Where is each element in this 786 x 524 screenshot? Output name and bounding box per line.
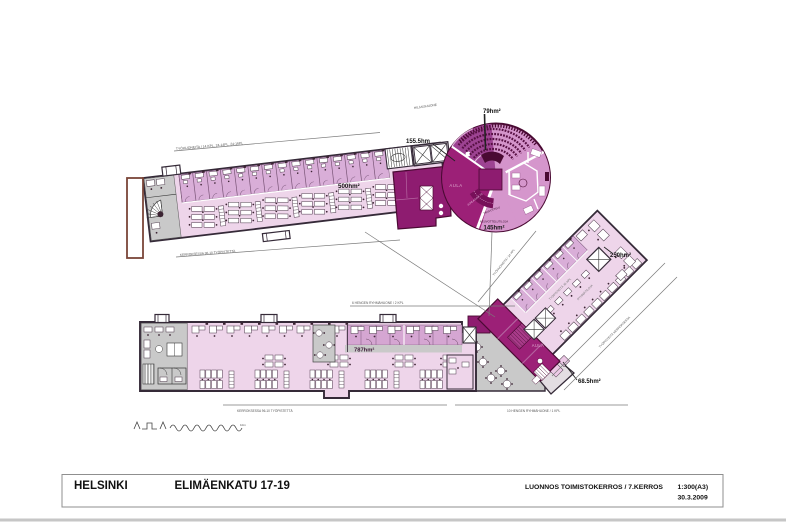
svg-text:TYÖPISTEITÄ KERROKSESSA: TYÖPISTEITÄ KERROKSESSA bbox=[598, 315, 631, 348]
svg-text:155.5hm: 155.5hm bbox=[406, 139, 430, 145]
svg-text:KERROKSESSA 96-10 TYÖPISTETTÄ: KERROKSESSA 96-10 TYÖPISTETTÄ bbox=[237, 409, 293, 413]
svg-text:79hm²: 79hm² bbox=[483, 108, 501, 115]
svg-text:10m: 10m bbox=[240, 423, 246, 427]
svg-text:68.5hm²: 68.5hm² bbox=[578, 378, 601, 385]
svg-text:TYÖHUONEITA / 14 KPL: TYÖHUONEITA / 14 KPL bbox=[492, 248, 516, 277]
svg-text:TYÖHUONEITA / 14 KPL, 24-14PL,: TYÖHUONEITA / 14 KPL, 24-14PL, 24-16PL bbox=[176, 141, 244, 151]
svg-text:6 HENGEN RYHMÄHUONE / 2 KPL: 6 HENGEN RYHMÄHUONE / 2 KPL bbox=[352, 301, 404, 305]
svg-text:145hm²: 145hm² bbox=[483, 225, 504, 232]
svg-text:787hm²: 787hm² bbox=[354, 347, 374, 354]
svg-text:1:300(A3): 1:300(A3) bbox=[678, 484, 709, 491]
svg-text:KERROKSESSA 36-10 TYÖPISTETTÄ: KERROKSESSA 36-10 TYÖPISTETTÄ bbox=[180, 249, 237, 257]
svg-text:30.3.2009: 30.3.2009 bbox=[678, 495, 708, 502]
svg-text:NEUVOTTELUTILOJA: NEUVOTTELUTILOJA bbox=[480, 220, 508, 224]
svg-text:HELSINKI: HELSINKI bbox=[74, 480, 128, 492]
svg-text:10 HENGEN RYHMÄHUONE / 1 KPL: 10 HENGEN RYHMÄHUONE / 1 KPL bbox=[507, 409, 560, 413]
svg-text:ELIMÄENKATU 17-19: ELIMÄENKATU 17-19 bbox=[175, 479, 290, 492]
svg-text:HILJAISHUONE: HILJAISHUONE bbox=[414, 103, 438, 110]
svg-text:AULA: AULA bbox=[449, 183, 462, 188]
svg-text:500hm²: 500hm² bbox=[338, 183, 360, 190]
svg-text:LUONNOS TOIMISTOKERROS / 7.KER: LUONNOS TOIMISTOKERROS / 7.KERROS bbox=[525, 484, 663, 491]
svg-text:AULA: AULA bbox=[532, 343, 545, 348]
svg-text:250hm²: 250hm² bbox=[610, 252, 631, 259]
